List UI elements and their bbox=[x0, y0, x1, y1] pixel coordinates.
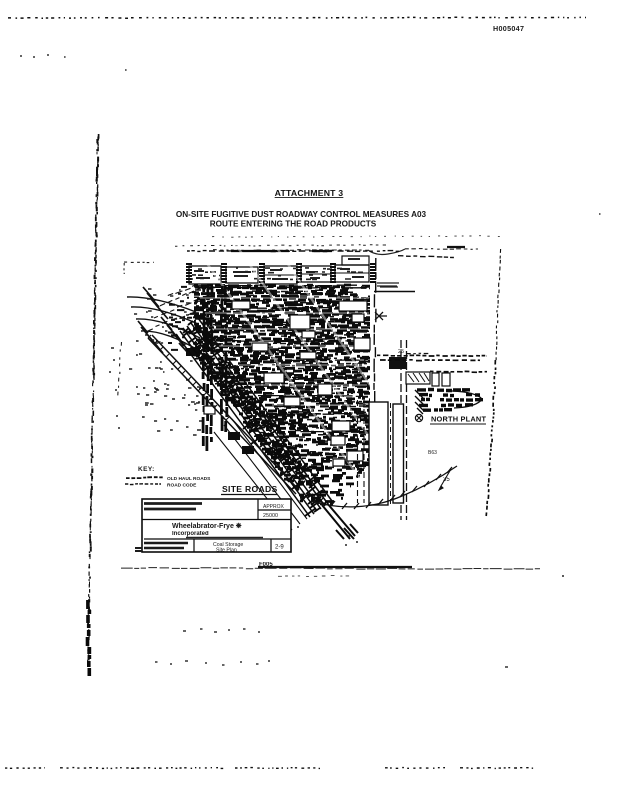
svg-text:ROUTE ENTERING THE ROAD PRODUC: ROUTE ENTERING THE ROAD PRODUCTS bbox=[210, 220, 377, 229]
svg-text:B63: B63 bbox=[428, 450, 437, 456]
svg-text:H005047: H005047 bbox=[493, 24, 524, 33]
svg-text:25000: 25000 bbox=[263, 513, 278, 519]
svg-text:ROAD CODE: ROAD CODE bbox=[167, 483, 197, 489]
svg-text:F005: F005 bbox=[259, 562, 273, 568]
svg-text:NORTH PLANT: NORTH PLANT bbox=[431, 415, 486, 424]
svg-text:Incorporated: Incorporated bbox=[172, 531, 209, 537]
svg-text:OLD HAUL ROADS: OLD HAUL ROADS bbox=[167, 476, 211, 482]
svg-text:SITE ROADS: SITE ROADS bbox=[222, 484, 278, 494]
svg-text:25: 25 bbox=[398, 349, 404, 355]
svg-text:Wheelabrator-Frye ❋: Wheelabrator-Frye ❋ bbox=[172, 522, 242, 530]
svg-text:2-9: 2-9 bbox=[275, 545, 284, 551]
svg-text:ON-SITE FUGITIVE DUST ROADWAY: ON-SITE FUGITIVE DUST ROADWAY CONTROL ME… bbox=[176, 210, 427, 219]
svg-text:ATTACHMENT 3: ATTACHMENT 3 bbox=[275, 188, 344, 198]
svg-text:35: 35 bbox=[443, 477, 450, 483]
svg-text:Site Plan: Site Plan bbox=[216, 548, 237, 554]
svg-text:KEY:: KEY: bbox=[138, 466, 155, 473]
svg-text:APPROX: APPROX bbox=[263, 504, 285, 510]
